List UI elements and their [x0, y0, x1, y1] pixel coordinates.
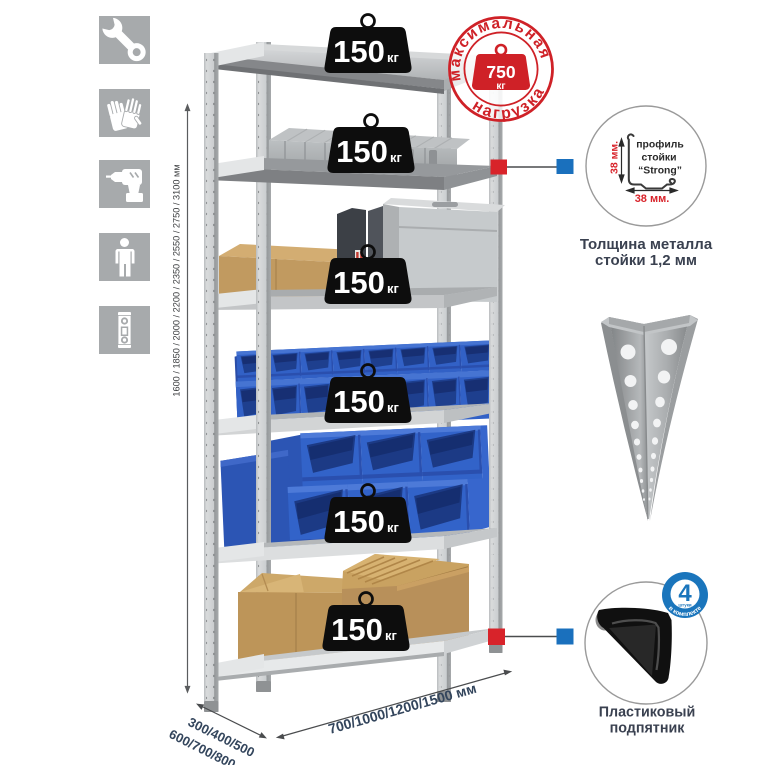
- svg-text:750: 750: [486, 62, 515, 82]
- svg-text:стойки: стойки: [641, 153, 676, 164]
- svg-text:Толщина металла: Толщина металла: [580, 236, 713, 253]
- svg-text:38 мм.: 38 мм.: [609, 141, 621, 174]
- svg-text:подпятник: подпятник: [610, 721, 686, 737]
- svg-text:38 мм.: 38 мм.: [635, 193, 670, 205]
- svg-text:профиль: профиль: [636, 139, 683, 151]
- svg-text:1600 / 1850 / 2000 / 2200 / 23: 1600 / 1850 / 2000 / 2200 / 2350 / 2550 …: [172, 164, 182, 396]
- svg-text:штуки: штуки: [678, 603, 692, 608]
- svg-text:кг: кг: [496, 81, 505, 92]
- svg-text:стойки 1,2 мм: стойки 1,2 мм: [595, 252, 697, 269]
- svg-text:“Strong”: “Strong”: [638, 166, 682, 177]
- svg-text:Пластиковый: Пластиковый: [599, 705, 696, 721]
